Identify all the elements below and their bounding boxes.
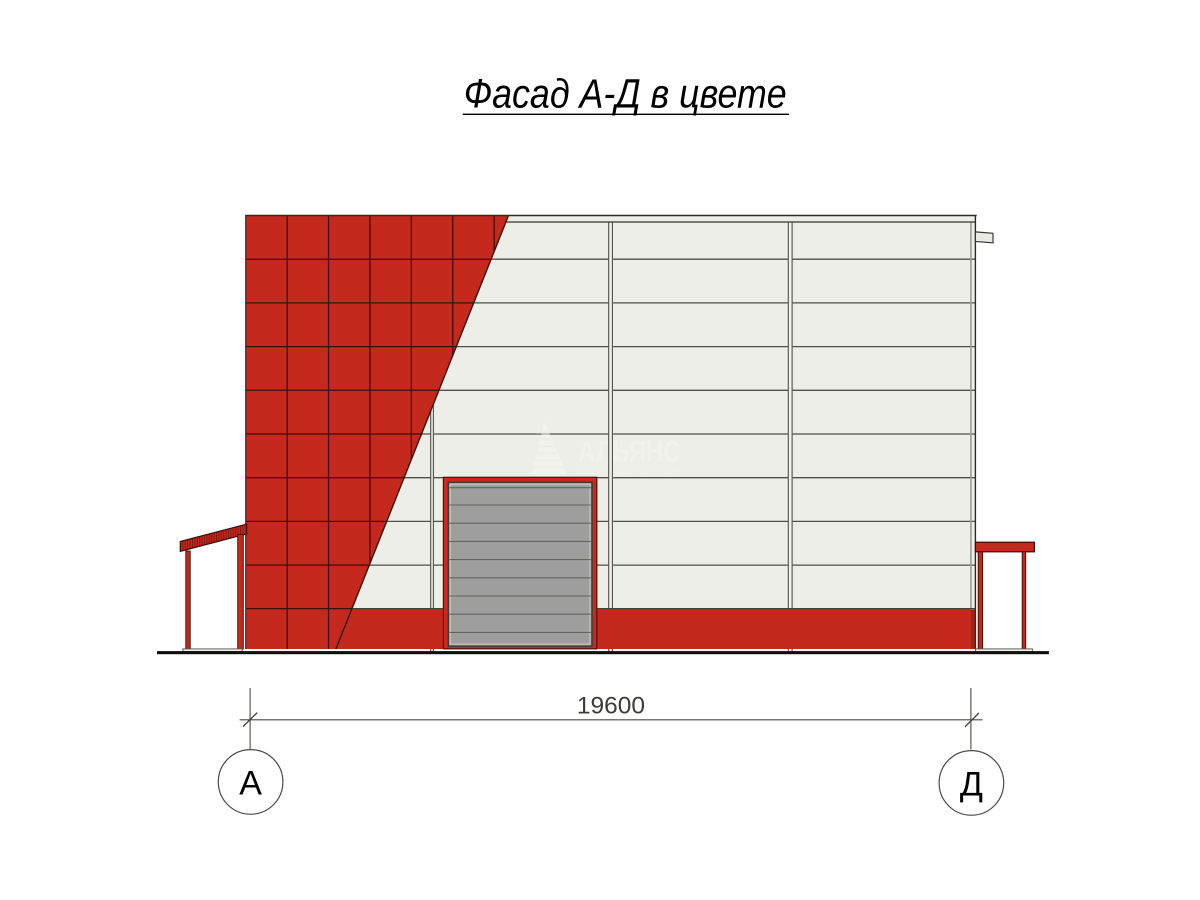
svg-text:19600: 19600 — [577, 693, 645, 720]
svg-text:Д: Д — [960, 765, 983, 803]
svg-text:АЛЬЯНС: АЛЬЯНС — [579, 436, 681, 469]
svg-text:А: А — [239, 764, 262, 802]
svg-text:Фасад А-Д в цвете: Фасад А-Д в цвете — [464, 71, 787, 117]
svg-text:СТРОИТЕЛЬНАЯ КОМПАНИЯ: СТРОИТЕЛЬНАЯ КОМПАНИЯ — [577, 467, 680, 476]
